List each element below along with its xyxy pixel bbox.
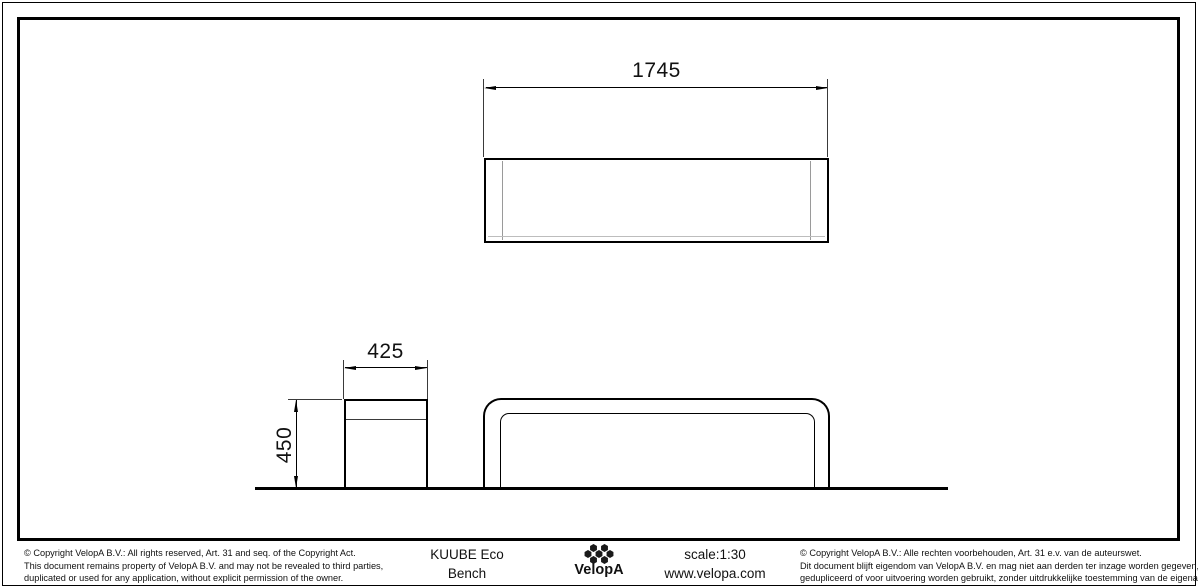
arrowhead-up-icon [294, 400, 298, 412]
side-view-outline [344, 399, 428, 489]
arrowhead-left-icon [344, 366, 356, 370]
arrowhead-left-icon [484, 86, 496, 90]
front-view-inner-outline [500, 413, 815, 488]
website-url: www.velopa.com [645, 564, 785, 583]
dimension-height-line [296, 400, 297, 488]
product-name: KUUBE Eco [382, 545, 552, 564]
arrowhead-right-icon [415, 366, 427, 370]
copyright-english: © Copyright VelopA B.V.: All rights rese… [24, 547, 383, 585]
top-view-edge-line [502, 161, 503, 240]
extension-line [483, 79, 484, 157]
dimension-width-label: 425 [343, 340, 428, 364]
product-type: Bench [382, 564, 552, 583]
extension-line [827, 79, 828, 157]
copyright-line: © Copyright VelopA B.V.: Alle rechten vo… [800, 547, 1198, 560]
copyright-line: gedupliceerd of voor uitvoering worden g… [800, 572, 1198, 585]
copyright-line: Dit document blijft eigendom van VelopA … [800, 560, 1198, 573]
velopa-logo-text: VelopA [570, 562, 628, 578]
velopa-flower-icon [584, 544, 614, 564]
scale-value: scale:1:30 [645, 545, 785, 564]
extension-line [427, 360, 428, 399]
scale-and-website: scale:1:30 www.velopa.com [645, 545, 785, 583]
side-view-seat-edge-line [346, 419, 426, 420]
copyright-line: © Copyright VelopA B.V.: All rights rese… [24, 547, 383, 560]
dimension-height-label: 450 [273, 415, 295, 475]
extension-line [343, 360, 344, 399]
copyright-line: duplicated or used for any application, … [24, 572, 383, 585]
dimension-length-line [486, 87, 827, 88]
copyright-line: This document remains property of VelopA… [24, 560, 383, 573]
drawing-sheet: 1745 425 450 © Copyright VelopA B.V.: Al… [0, 0, 1198, 588]
top-view-edge-line [810, 161, 811, 240]
copyright-dutch: © Copyright VelopA B.V.: Alle rechten vo… [800, 547, 1198, 585]
product-title: KUUBE Eco Bench [382, 545, 552, 583]
dimension-length-label: 1745 [486, 59, 827, 83]
ground-line [255, 487, 948, 490]
top-view-edge-line [488, 236, 825, 237]
top-view-outline [484, 158, 829, 243]
